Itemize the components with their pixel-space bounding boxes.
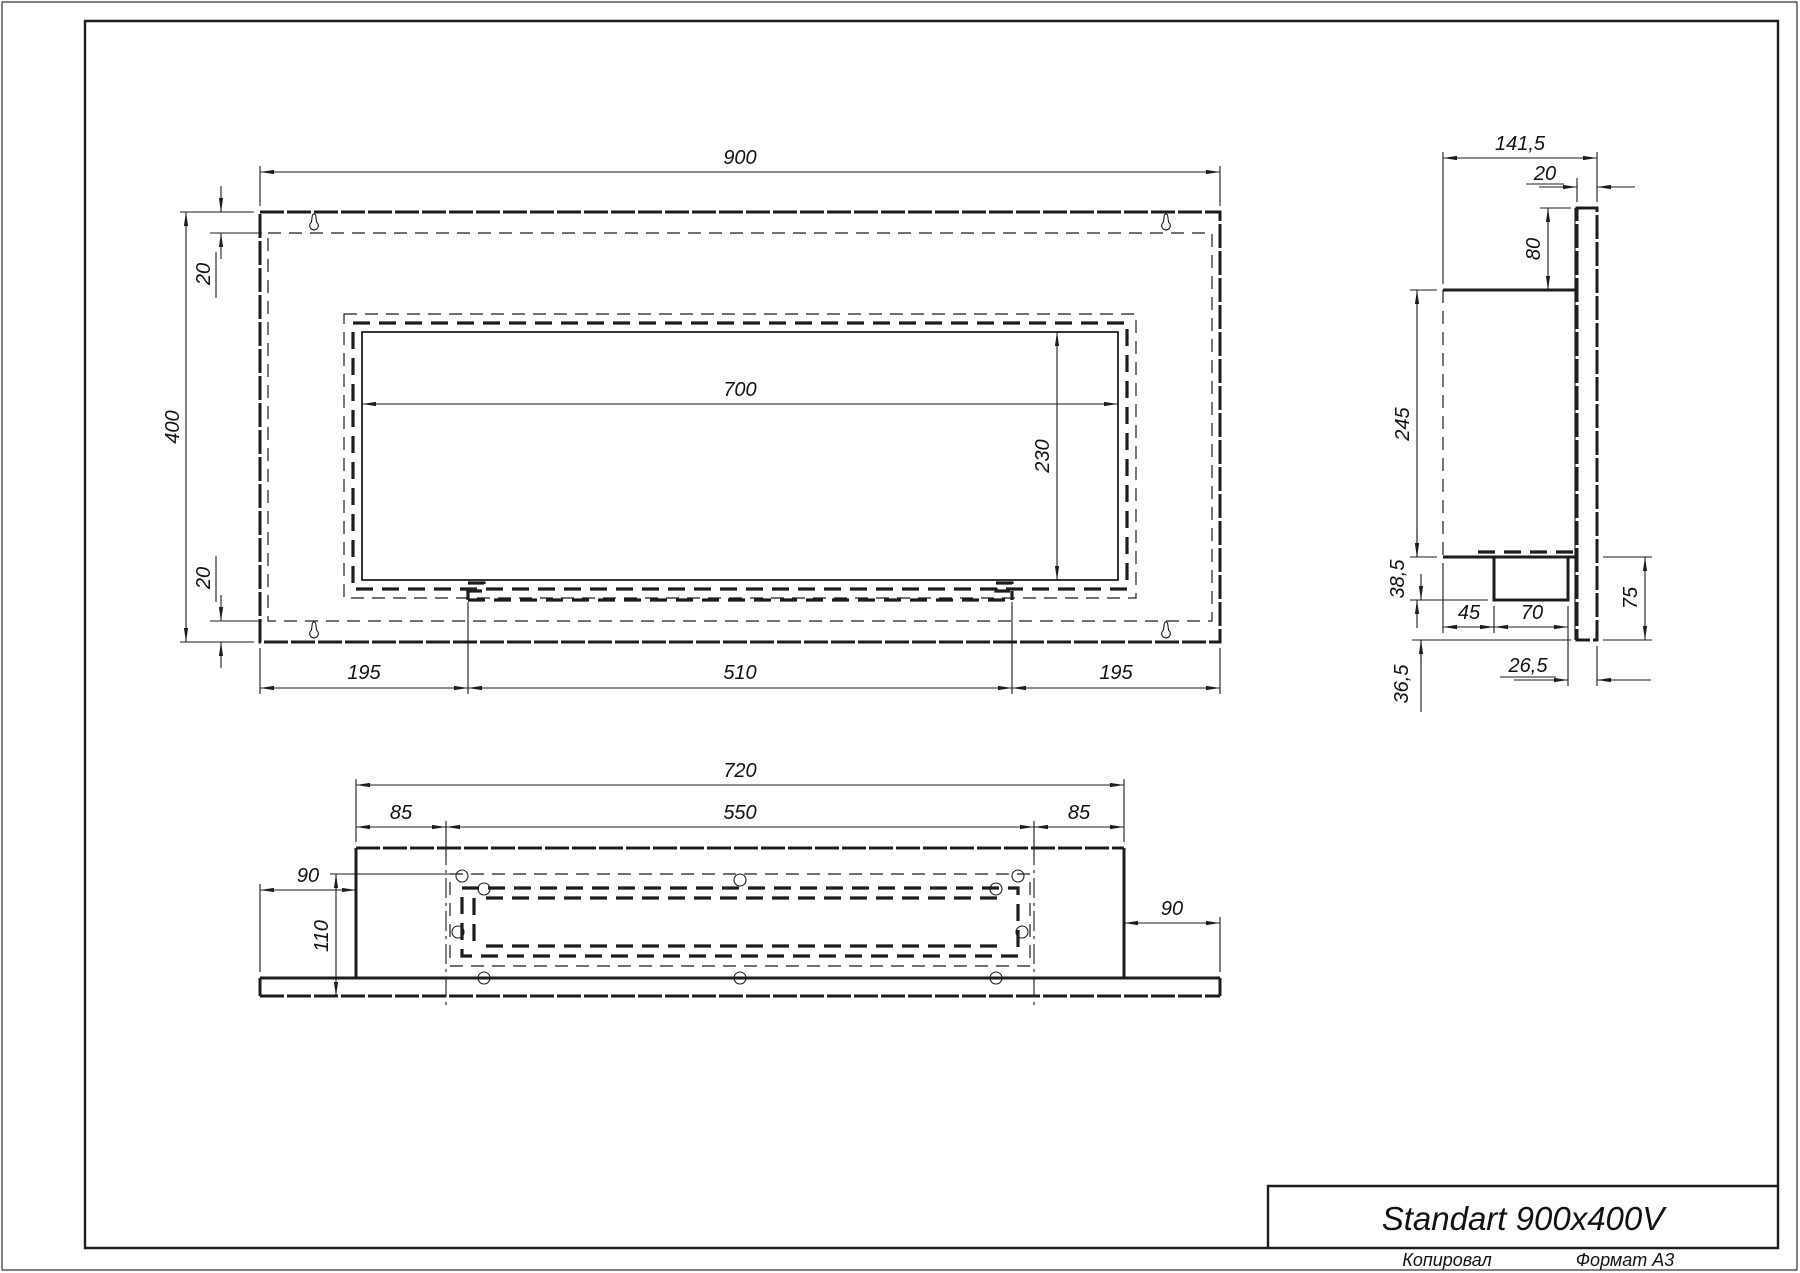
dim-front-opening-height: 230 <box>1032 332 1057 580</box>
dim-label-90-right: 90 <box>1161 898 1183 920</box>
dim-side-below-body: 75 <box>1603 557 1652 640</box>
dim-front-overall-width: 900 <box>260 147 1220 206</box>
drawing-sheet: 900 400 20 20 700 <box>0 0 1800 1273</box>
dim-label-720: 720 <box>723 760 756 782</box>
dim-label-20-plate: 20 <box>1533 163 1556 185</box>
dim-label-36-5: 36,5 <box>1391 664 1413 704</box>
hole <box>1012 870 1024 882</box>
sheet-frame <box>2 2 1797 1270</box>
dim-top-right-overhang: 90 <box>1124 898 1220 972</box>
dim-label-80: 80 <box>1523 238 1545 260</box>
dim-label-110: 110 <box>311 920 333 952</box>
side-view: 141,5 20 80 245 38,5 <box>1387 133 1652 712</box>
dim-top-mount-row: 85 550 85 <box>356 802 1124 845</box>
dim-label-90-left: 90 <box>297 865 319 887</box>
keyhole-icon <box>1162 622 1171 638</box>
dim-label-400: 400 <box>162 410 184 443</box>
dim-label-20-top: 20 <box>193 263 215 286</box>
dim-label-195-left: 195 <box>347 662 381 684</box>
dim-side-tray-row: 45 70 <box>1443 563 1568 633</box>
dim-side-body-height: 245 <box>1392 290 1437 557</box>
title-block: Standart 900x400V Копировал Формат А3 <box>1268 1186 1778 1270</box>
top-view: 720 85 550 85 90 90 110 <box>260 760 1220 1008</box>
keyhole-icon <box>1162 214 1171 230</box>
side-tray <box>1494 557 1568 600</box>
dim-label-75: 75 <box>1620 586 1642 609</box>
side-outline <box>1443 208 1597 640</box>
dim-front-top-flange: 20 <box>193 186 262 298</box>
dim-front-bottom-flange: 20 <box>193 556 262 668</box>
front-view: 900 400 20 20 700 <box>162 147 1220 694</box>
dim-label-20-bottom: 20 <box>193 567 215 590</box>
dim-label-550: 550 <box>723 802 756 824</box>
product-title: Standart 900x400V <box>1382 1200 1668 1237</box>
dim-label-141-5: 141,5 <box>1495 133 1546 155</box>
top-outline <box>260 848 1220 996</box>
dim-front-opening-width: 700 <box>362 379 1118 404</box>
dim-label-85-right: 85 <box>1068 802 1091 824</box>
dim-side-plate-thickness: 20 <box>1526 163 1635 202</box>
dim-side-top-drop: 80 <box>1523 208 1571 290</box>
top-burner <box>446 845 1034 1008</box>
dim-label-38-5: 38,5 <box>1387 559 1409 599</box>
dim-label-85-left: 85 <box>390 802 413 824</box>
dim-label-70: 70 <box>1521 602 1543 624</box>
dim-label-45: 45 <box>1458 602 1481 624</box>
front-outline <box>260 212 1220 642</box>
format-label: Формат А3 <box>1576 1250 1675 1270</box>
keyhole-icon <box>310 622 319 638</box>
dim-label-245: 245 <box>1392 406 1414 441</box>
hole <box>734 874 746 886</box>
dim-label-900: 900 <box>723 147 756 169</box>
dim-side-depth: 141,5 <box>1443 133 1597 284</box>
dim-label-26-5: 26,5 <box>1508 655 1549 677</box>
dim-top-left-overhang: 90 <box>260 865 356 972</box>
front-opening <box>344 314 1136 598</box>
dim-top-body-width: 720 <box>356 760 1124 842</box>
dim-side-plate-overhang: 36,5 <box>1391 574 1571 712</box>
keyhole-icon <box>310 214 319 230</box>
copied-label: Копировал <box>1402 1250 1492 1270</box>
hole <box>456 870 468 882</box>
dim-label-700: 700 <box>723 379 756 401</box>
dim-front-bottom-row: 195 510 195 <box>260 602 1220 694</box>
dim-label-195-right: 195 <box>1099 662 1133 684</box>
dim-label-230: 230 <box>1032 439 1054 473</box>
dim-label-510: 510 <box>723 662 756 684</box>
technical-drawing: 900 400 20 20 700 <box>0 0 1800 1273</box>
